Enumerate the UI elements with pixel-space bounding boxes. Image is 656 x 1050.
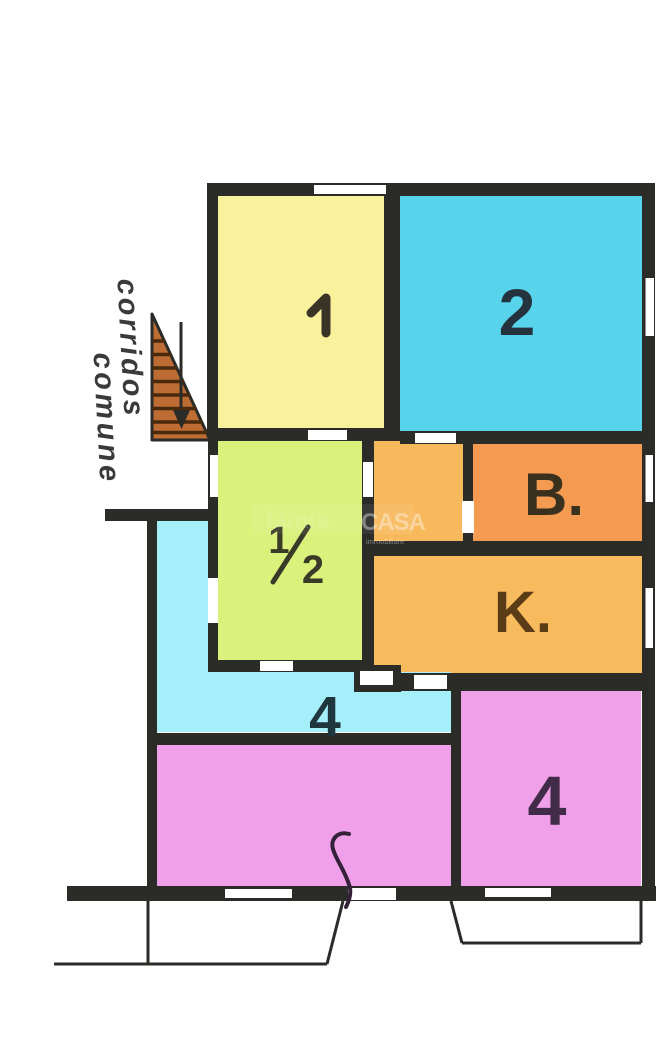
svg-text:CASA: CASA — [361, 509, 426, 536]
svg-text:4: 4 — [528, 762, 567, 840]
svg-text:2: 2 — [302, 548, 324, 592]
svg-text:lamia: lamia — [266, 506, 331, 534]
svg-text:2: 2 — [499, 275, 536, 349]
svg-text:K.: K. — [494, 580, 552, 645]
svg-text:immobiliare: immobiliare — [366, 537, 404, 546]
svg-text:B.: B. — [524, 461, 584, 528]
svg-text:4: 4 — [309, 685, 341, 749]
